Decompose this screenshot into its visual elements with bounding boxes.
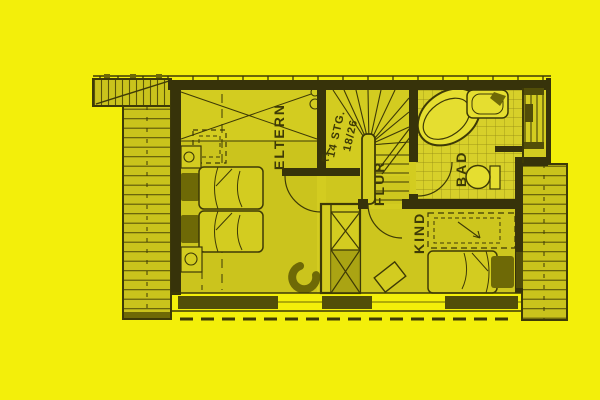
wall-stair-bath [409,88,418,162]
window-kind [445,296,518,309]
chimney [321,204,360,293]
roof-hatch-left [123,106,171,319]
roof-hatch-right [522,164,567,320]
exterior-edge-right-bath [546,78,551,164]
toilet-partition-wall [495,146,523,152]
toilet [466,166,500,190]
room-label-bad: BAD [453,151,469,187]
washbasin [467,90,508,118]
room-label-flur: FLUR [371,161,387,206]
wall-bath-kind [402,199,523,209]
floor-plan-drawing: ELTERN FLUR BAD KIND 14 STG. 18/26 [0,0,600,400]
wall-step-right [515,157,548,166]
bed-child [428,251,514,293]
pillow [181,173,199,201]
pillow [181,215,199,243]
scanned-page: ELTERN FLUR BAD KIND 14 STG. 18/26 [0,0,600,400]
dressing-table [181,146,201,168]
room-label-kind: KIND [411,212,427,254]
window-flur [322,296,372,309]
window-eltern [178,296,278,309]
exterior-wall-left [171,85,181,295]
room-label-eltern: ELTERN [271,103,287,170]
nightstand [181,247,202,272]
roof-hatch-top-left [93,79,171,106]
wall-south-of-stairs [282,168,360,176]
wall-flur-kind-left [358,199,368,209]
window-kind-right [516,252,523,288]
pillow [491,256,514,288]
exterior-wall-bottom [171,293,523,311]
exterior-wall-top [168,80,548,90]
